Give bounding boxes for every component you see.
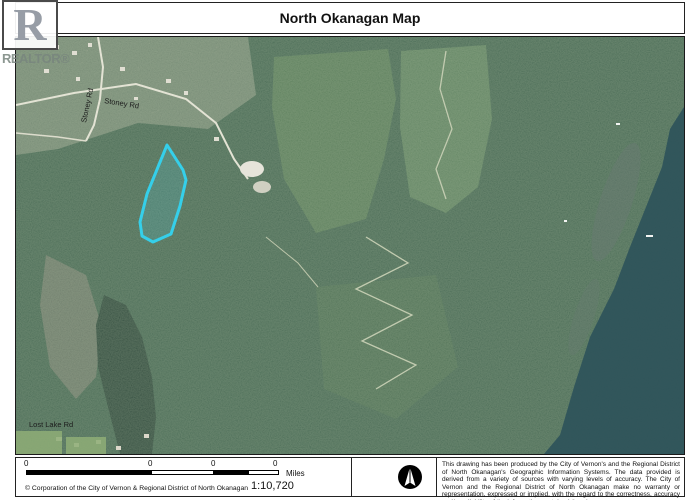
map-window: North Okanagan Map [0, 0, 700, 500]
map-title-bar: North Okanagan Map [15, 2, 685, 34]
north-arrow-icon [352, 458, 436, 496]
realtor-logo: R REALTOR® [2, 0, 82, 66]
scalebar-tick: 0 [211, 459, 215, 468]
scalebar-tick: 0 [148, 459, 152, 468]
copyright-text: © Corporation of the City of Vernon & Re… [25, 485, 248, 492]
scalebar-segment [214, 470, 248, 475]
scalebar-panel: 0 0 0 0 Miles © Corporation of the City … [15, 457, 352, 497]
scalebar-units: Miles [286, 469, 305, 478]
scalebar-segment [151, 470, 214, 475]
road-label-lost-lake: Lost Lake Rd [29, 420, 73, 429]
scale-ratio: 1:10,720 [251, 480, 294, 492]
scalebar: 0 0 0 0 Miles © Corporation of the City … [16, 458, 351, 496]
scalebar-segment [248, 470, 279, 475]
clearing-pit [240, 161, 264, 177]
north-arrow-panel [351, 457, 437, 497]
aerial-map[interactable]: Stoney Rd Stoney Rd Lost Lake Rd [16, 37, 684, 454]
page-title: North Okanagan Map [16, 10, 684, 26]
realtor-r-icon: R [13, 3, 46, 47]
clearing-pit-2 [253, 181, 271, 193]
realtor-logo-box: R [2, 0, 58, 50]
aerial-map-viewport[interactable]: Stoney Rd Stoney Rd Lost Lake Rd [15, 36, 685, 455]
disclaimer-panel: This drawing has been produced by the Ci… [436, 457, 685, 497]
scalebar-tick: 0 [24, 459, 28, 468]
scalebar-tick: 0 [273, 459, 277, 468]
scalebar-segment [26, 470, 151, 475]
realtor-logo-label: REALTOR® [2, 51, 82, 66]
disclaimer-text: This drawing has been produced by the Ci… [437, 458, 684, 500]
